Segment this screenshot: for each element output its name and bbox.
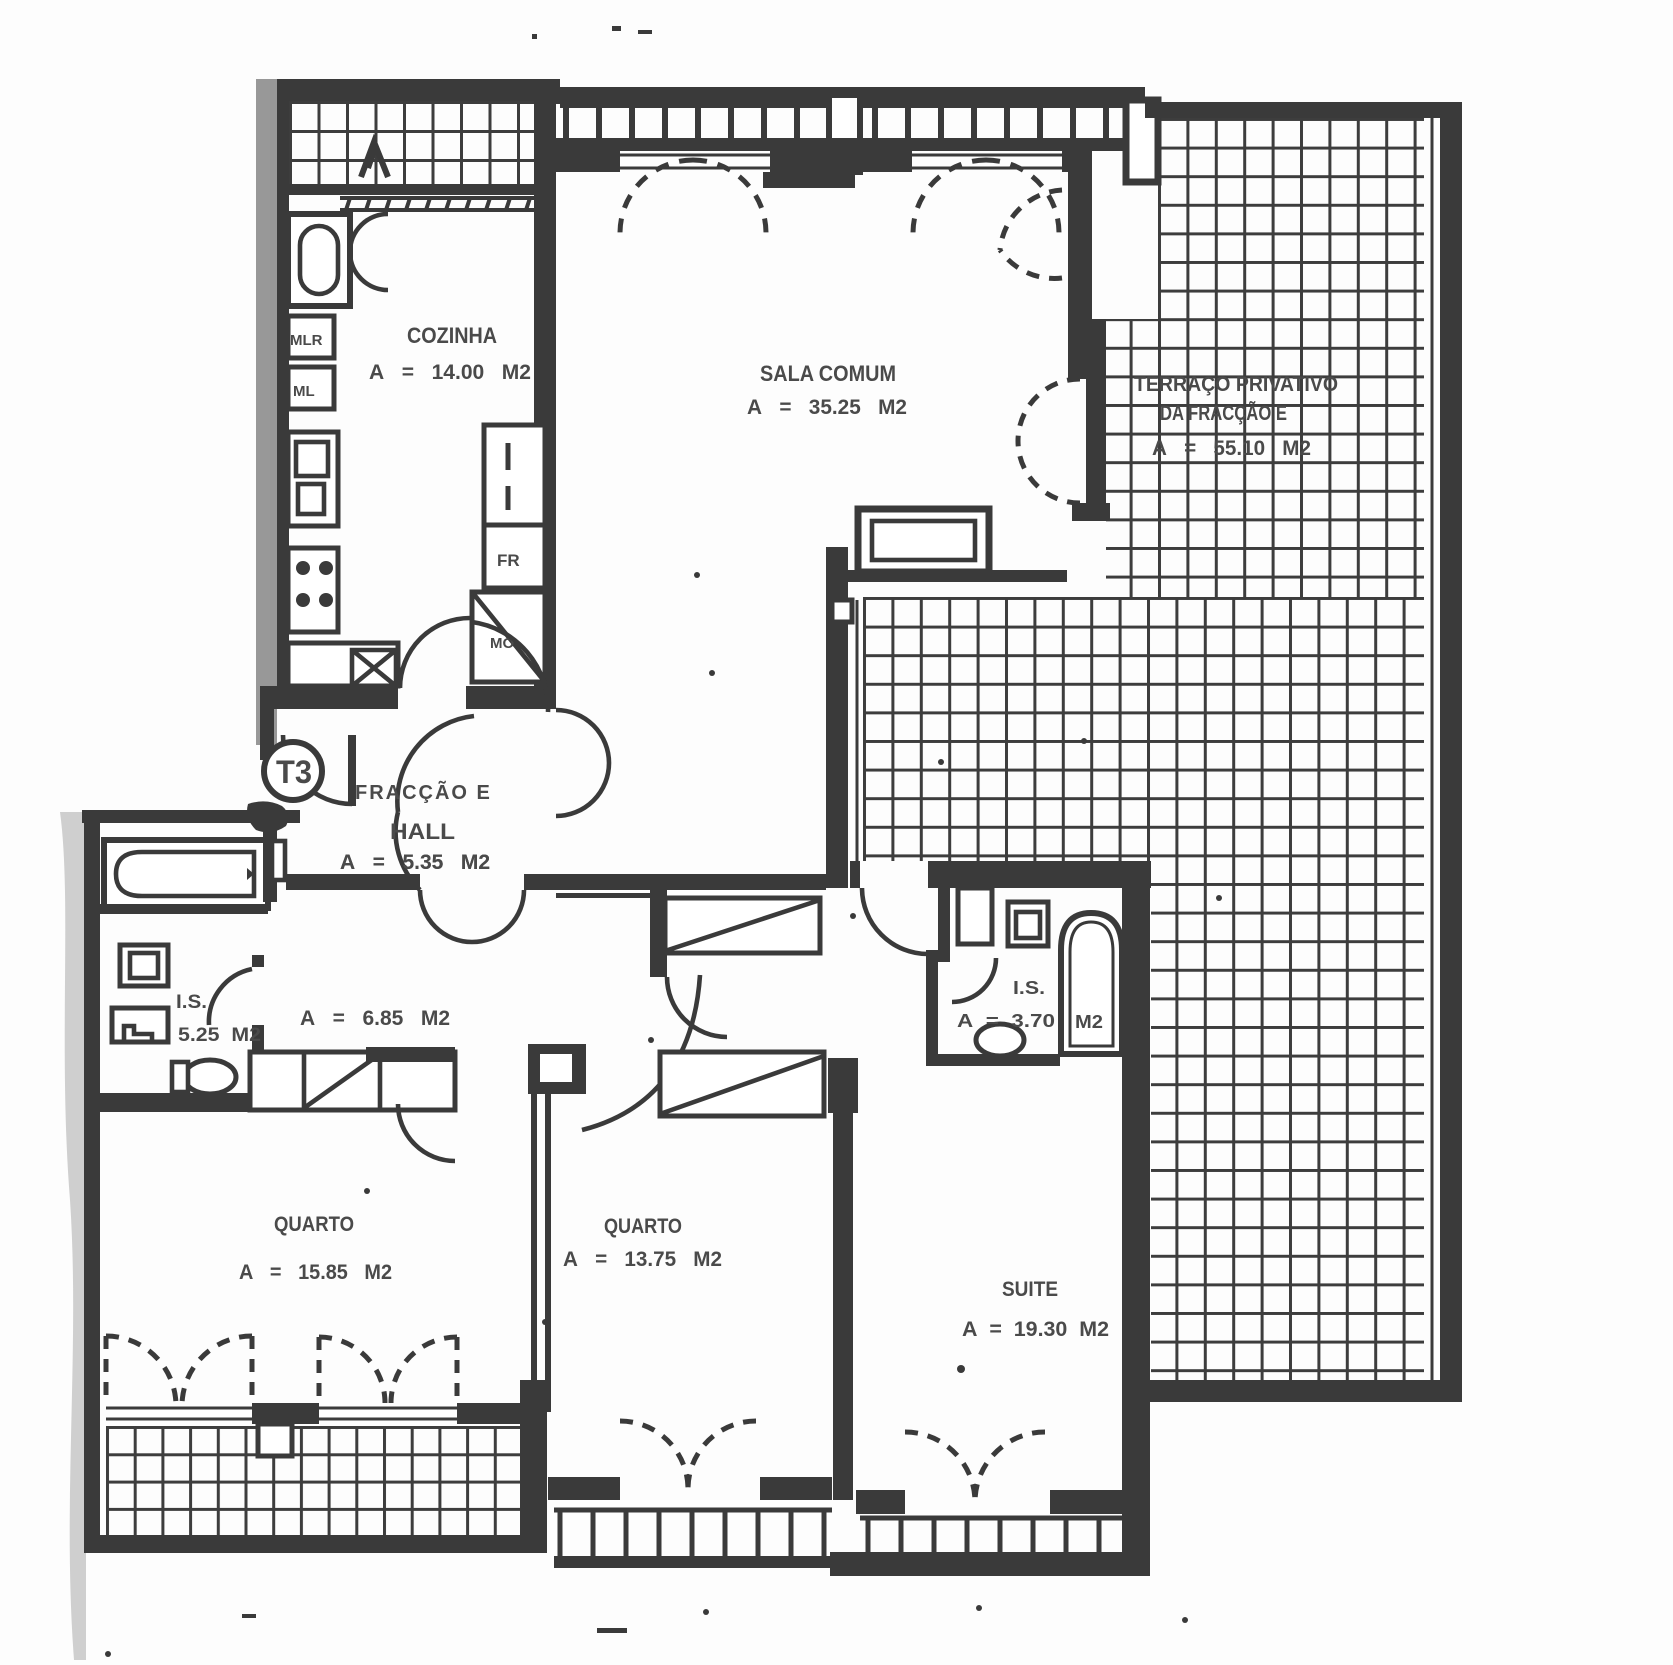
svg-text:I.S.: I.S.: [176, 992, 207, 1013]
svg-text:I.S.: I.S.: [1013, 978, 1045, 998]
svg-text:SALA COMUM: SALA COMUM: [760, 361, 896, 386]
svg-text:T3: T3: [276, 754, 312, 790]
svg-text:A = 6.85 M2: A = 6.85 M2: [300, 1007, 450, 1030]
svg-text:A = 13.75 M2: A = 13.75 M2: [563, 1248, 722, 1271]
svg-text:M2: M2: [1075, 1012, 1103, 1032]
svg-text:A = 5.35 M2: A = 5.35 M2: [340, 851, 490, 874]
svg-text:QUARTO: QUARTO: [604, 1215, 682, 1238]
svg-text:FR: FR: [497, 551, 520, 570]
svg-text:HALL: HALL: [390, 819, 455, 844]
svg-text:A = 19.30 M2: A = 19.30 M2: [962, 1318, 1109, 1341]
svg-text:TERRAÇO PRIVATIVO: TERRAÇO PRIVATIVO: [1134, 373, 1338, 396]
svg-text:A = 14.00 M2: A = 14.00 M2: [369, 361, 531, 384]
svg-text:QUARTO: QUARTO: [274, 1213, 354, 1236]
svg-text:SUITE: SUITE: [1002, 1278, 1058, 1301]
svg-text:5.25 M2: 5.25 M2: [178, 1025, 261, 1046]
svg-text:FRACÇÃO E: FRACÇÃO E: [355, 781, 492, 804]
svg-text:ML: ML: [293, 383, 315, 400]
svg-text:COZINHA: COZINHA: [407, 323, 497, 348]
svg-text:MLR: MLR: [290, 332, 323, 349]
svg-text:A = 35.25 M2: A = 35.25 M2: [747, 396, 907, 419]
svg-text:DA FRACÇÃO E: DA FRACÇÃO E: [1160, 402, 1287, 425]
svg-text:A = 15.85 M2: A = 15.85 M2: [239, 1261, 392, 1284]
svg-text:A = 55.10 M2: A = 55.10 M2: [1152, 437, 1311, 460]
svg-text:A = 3.70: A = 3.70: [957, 1011, 1055, 1031]
